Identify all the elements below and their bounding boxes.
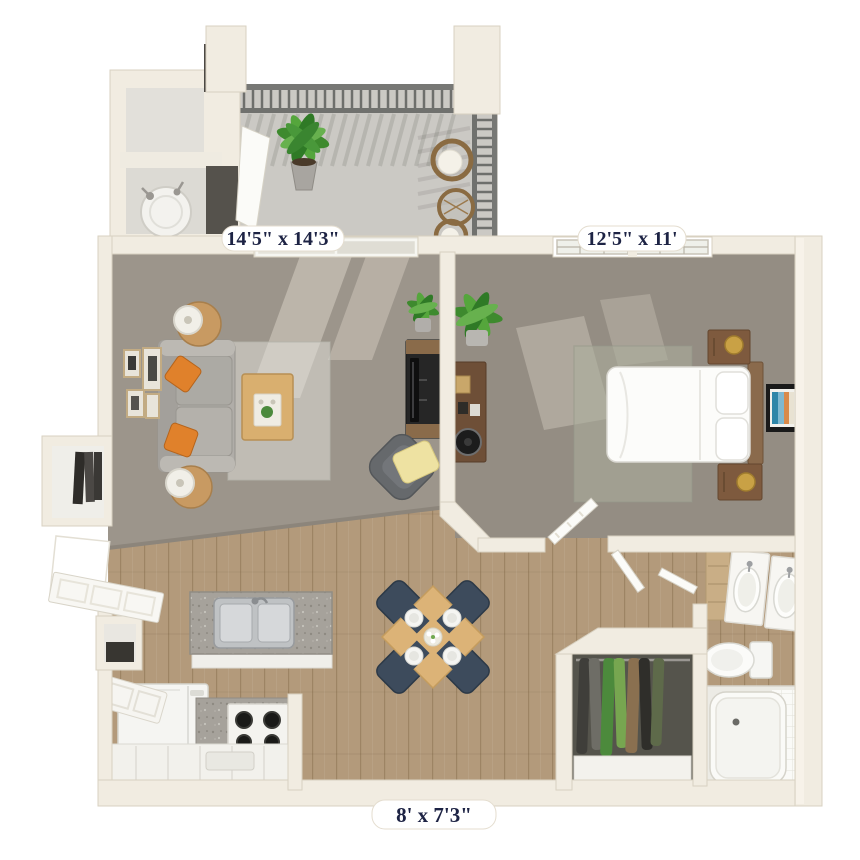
bed bbox=[607, 362, 763, 464]
patio-table bbox=[439, 190, 473, 224]
balcony-pillar-left bbox=[206, 26, 246, 92]
tv-console bbox=[406, 340, 444, 438]
counter-inset bbox=[206, 752, 254, 770]
vanity-sink bbox=[724, 550, 769, 626]
desk-books bbox=[458, 402, 468, 414]
bedroom-bottom-wall-2 bbox=[608, 536, 795, 552]
floorplan-rendering: 14'5" x 14'3" 12'5" x 11' 8' x 7'3" bbox=[0, 0, 860, 860]
coffee-table bbox=[242, 374, 293, 440]
tv-screen bbox=[410, 358, 419, 422]
kitchen-dining-dimension: 8' x 7'3" bbox=[372, 800, 496, 829]
bedroom-bottom-wall bbox=[478, 538, 545, 552]
kitchen-island bbox=[190, 592, 332, 668]
vanity bbox=[706, 548, 810, 632]
bedroom bbox=[450, 252, 800, 538]
left-wall-upper bbox=[98, 236, 112, 438]
bedroom-dimension: 12'5" x 11' bbox=[578, 226, 686, 251]
desk-box bbox=[470, 404, 480, 416]
burner bbox=[236, 712, 252, 728]
plant-pot bbox=[466, 330, 488, 346]
gold-lamp-2 bbox=[737, 473, 755, 491]
storage-dark-wall-2 bbox=[206, 166, 238, 234]
closet-left-wall bbox=[556, 654, 572, 790]
nightstand-bottom bbox=[718, 464, 762, 500]
coat bbox=[94, 452, 102, 500]
plant-pot bbox=[415, 318, 431, 332]
bedroom-desk bbox=[452, 362, 486, 462]
walk-in-closet bbox=[572, 652, 693, 788]
kitchen-dining-dimension-text: 8' x 7'3" bbox=[396, 803, 472, 827]
living-room-dimension-text: 14'5" x 14'3" bbox=[226, 228, 339, 250]
storage-shelf-divider bbox=[120, 152, 222, 168]
top-wall bbox=[98, 236, 822, 254]
centerpiece bbox=[424, 628, 442, 646]
balcony-pillar-right bbox=[454, 26, 500, 114]
tabletop-plant bbox=[261, 406, 273, 418]
coat bbox=[84, 452, 95, 502]
burner bbox=[264, 712, 280, 728]
desk-frame bbox=[456, 376, 470, 393]
living-bedroom-divider bbox=[440, 252, 455, 502]
nightstand-top bbox=[708, 330, 750, 364]
toilet bbox=[704, 642, 772, 678]
right-wall-inner-face bbox=[796, 238, 804, 804]
pillow bbox=[716, 372, 748, 414]
gold-lamp bbox=[725, 336, 743, 354]
bedroom-dimension-text: 12'5" x 11' bbox=[586, 228, 677, 250]
dining-area bbox=[374, 578, 493, 697]
living-room bbox=[108, 252, 455, 550]
plant-pot bbox=[291, 162, 317, 190]
tub-drain bbox=[733, 719, 740, 726]
pillow-2 bbox=[716, 418, 748, 460]
sofa bbox=[158, 340, 235, 472]
living-room-dimension: 14'5" x 14'3" bbox=[222, 226, 344, 251]
kitchen-nook-shadow bbox=[106, 642, 134, 662]
kitchen-wall bbox=[288, 694, 302, 790]
floorplan-canvas: 14'5" x 14'3" 12'5" x 11' 8' x 7'3" bbox=[0, 0, 860, 860]
storage-upper-niche bbox=[126, 88, 204, 152]
